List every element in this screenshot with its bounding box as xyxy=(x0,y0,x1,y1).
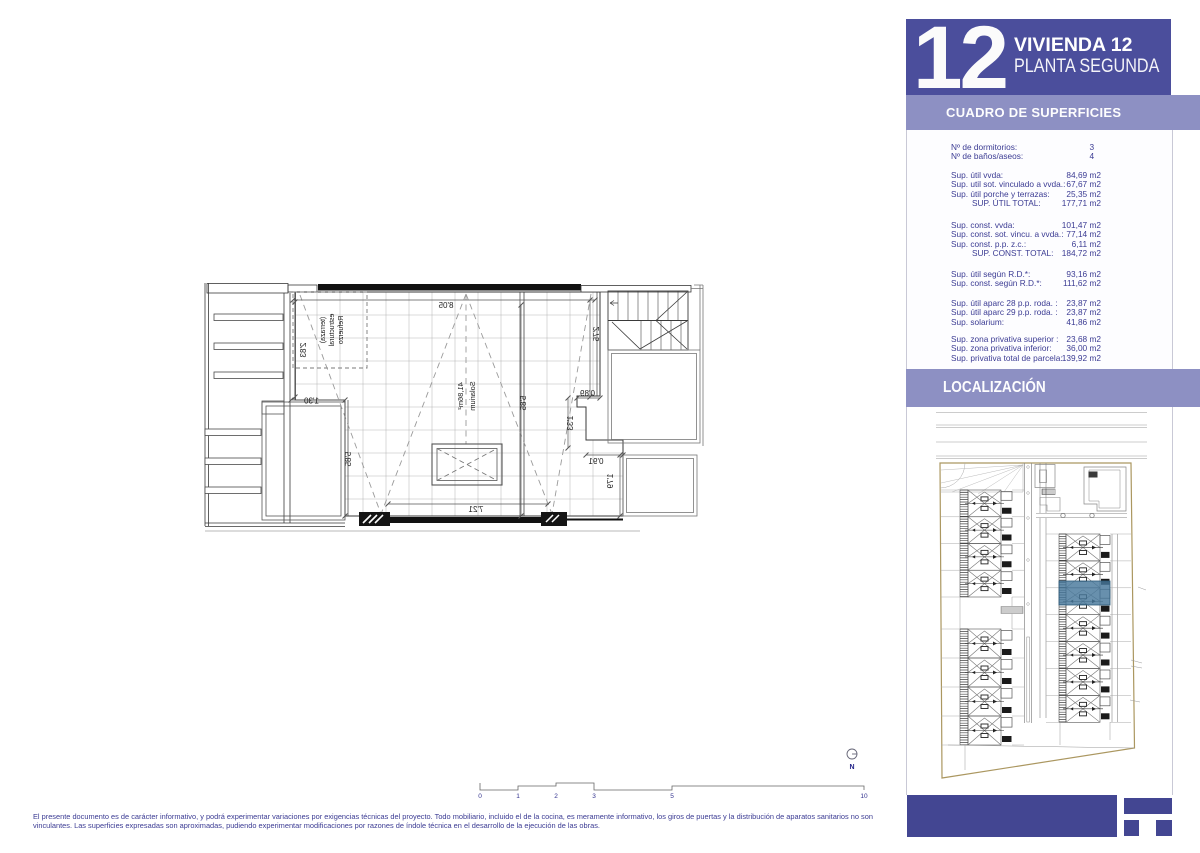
svg-text:2'83: 2'83 xyxy=(299,343,308,358)
svg-text:5'85: 5'85 xyxy=(519,396,528,411)
svg-text:1'33: 1'33 xyxy=(566,416,575,431)
svg-text:1'30: 1'30 xyxy=(304,397,319,406)
svg-text:3: 3 xyxy=(592,793,596,800)
svg-text:1: 1 xyxy=(516,793,520,800)
svg-text:(terraza): (terraza) xyxy=(320,317,327,343)
svg-text:Solarium: Solarium xyxy=(468,381,477,411)
svg-text:0'89: 0'89 xyxy=(580,389,595,398)
svg-text:10: 10 xyxy=(860,793,868,800)
svg-text:N: N xyxy=(849,764,854,771)
svg-text:5'85: 5'85 xyxy=(344,452,353,467)
svg-text:estructural: estructural xyxy=(329,314,336,347)
svg-text:7'21: 7'21 xyxy=(468,505,483,514)
svg-text:5: 5 xyxy=(670,793,674,800)
svg-text:41,86m²: 41,86m² xyxy=(456,382,465,410)
svg-text:0: 0 xyxy=(478,793,482,800)
svg-text:2'75: 2'75 xyxy=(592,327,601,342)
svg-text:Refuerzo: Refuerzo xyxy=(338,316,345,345)
svg-text:8'05: 8'05 xyxy=(438,301,453,310)
svg-text:2: 2 xyxy=(554,793,558,800)
svg-text:0'91: 0'91 xyxy=(588,457,603,466)
svg-text:1'79: 1'79 xyxy=(606,474,615,489)
